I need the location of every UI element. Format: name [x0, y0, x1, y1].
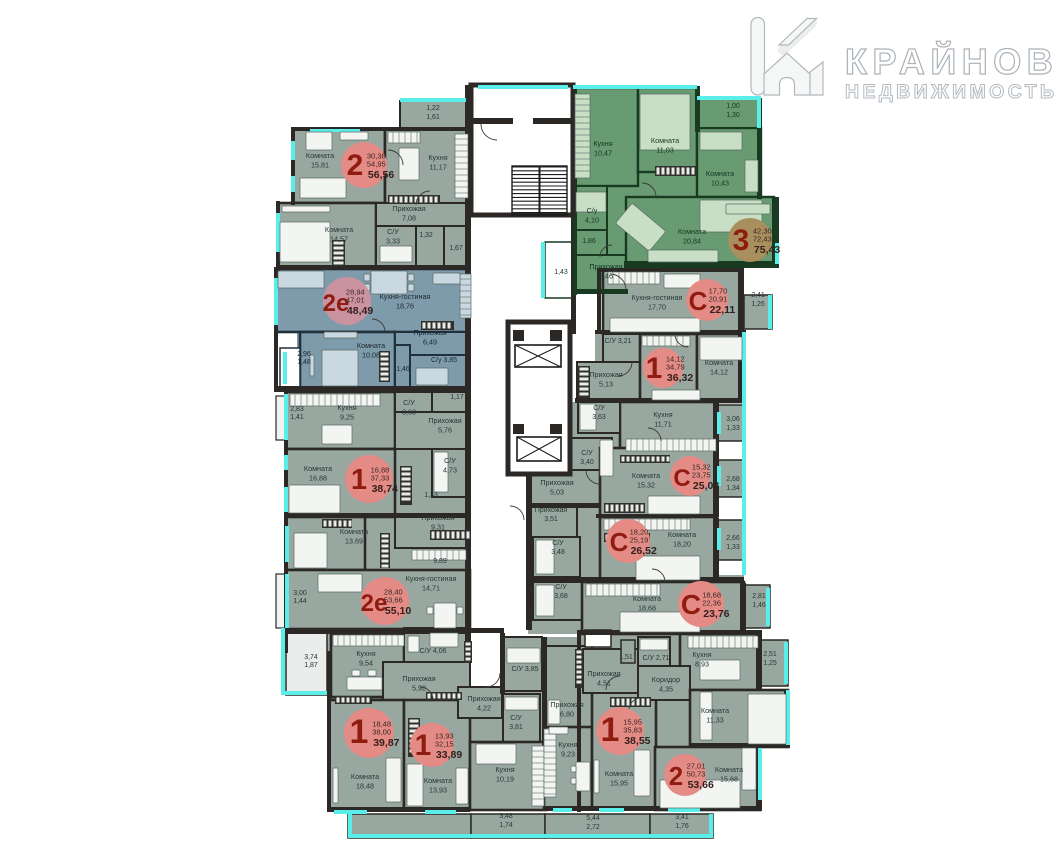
svg-text:13,93: 13,93 — [429, 786, 447, 795]
svg-text:НЕДВИЖИМОСТЬ: НЕДВИЖИМОСТЬ — [845, 81, 1057, 103]
svg-text:54,95: 54,95 — [367, 160, 386, 169]
svg-text:С: С — [681, 589, 701, 620]
svg-text:С/У: С/У — [444, 456, 456, 465]
svg-text:20,91: 20,91 — [709, 295, 728, 304]
svg-text:Кухня: Кухня — [495, 765, 514, 774]
svg-text:1: 1 — [350, 713, 369, 751]
svg-text:5,44: 5,44 — [586, 815, 600, 822]
svg-text:С: С — [689, 286, 708, 316]
svg-text:14,57: 14,57 — [330, 235, 348, 244]
svg-text:18,68: 18,68 — [638, 604, 656, 613]
svg-text:Прихожая: Прихожая — [402, 674, 435, 683]
svg-text:3,81: 3,81 — [509, 724, 523, 731]
svg-text:48,49: 48,49 — [347, 305, 373, 317]
svg-text:23,75: 23,75 — [692, 471, 711, 480]
svg-text:10,43: 10,43 — [711, 179, 729, 188]
svg-text:Кухня-гостиная: Кухня-гостиная — [406, 574, 457, 583]
svg-text:18,76: 18,76 — [396, 302, 414, 311]
svg-text:Кухня: Кухня — [593, 139, 612, 148]
svg-text:50,73: 50,73 — [687, 770, 706, 779]
svg-text:1,26: 1,26 — [751, 301, 765, 308]
svg-text:С/У: С/У — [387, 227, 399, 236]
svg-text:72,43: 72,43 — [753, 235, 772, 244]
svg-text:2,41: 2,41 — [751, 292, 765, 299]
svg-text:Кухня-гостиная: Кухня-гостиная — [380, 292, 431, 301]
svg-text:Комната: Комната — [705, 358, 733, 367]
svg-text:Комната: Комната — [340, 527, 368, 536]
svg-text:2,68: 2,68 — [726, 476, 740, 483]
svg-text:75,43: 75,43 — [754, 244, 780, 256]
svg-text:1: 1 — [646, 352, 663, 385]
svg-text:9,31: 9,31 — [431, 523, 445, 532]
svg-text:Кухня: Кухня — [356, 649, 375, 658]
svg-text:1,74: 1,74 — [499, 822, 513, 829]
svg-text:Комната: Комната — [633, 594, 661, 603]
svg-text:1,44: 1,44 — [293, 598, 307, 605]
svg-text:56,56: 56,56 — [368, 169, 394, 181]
svg-text:Комната: Комната — [706, 169, 734, 178]
svg-text:Коридор: Коридор — [652, 675, 680, 684]
svg-text:1,86: 1,86 — [582, 238, 596, 245]
svg-text:2: 2 — [669, 761, 683, 791]
svg-text:55,10: 55,10 — [385, 605, 411, 617]
svg-text:9,54: 9,54 — [359, 659, 373, 668]
svg-text:7,08: 7,08 — [402, 214, 416, 223]
svg-text:15,95: 15,95 — [610, 779, 628, 788]
svg-text:Комната: Комната — [351, 772, 379, 781]
svg-text:1,33: 1,33 — [424, 492, 438, 499]
svg-text:Прихожая: Прихожая — [550, 700, 583, 709]
svg-text:2,83: 2,83 — [290, 406, 304, 413]
svg-text:13,69: 13,69 — [345, 537, 363, 546]
svg-text:1,46: 1,46 — [752, 602, 766, 609]
svg-text:15,68: 15,68 — [720, 775, 738, 784]
svg-text:Кухня: Кухня — [337, 403, 356, 412]
svg-text:17,70: 17,70 — [648, 303, 666, 312]
svg-text:3,63: 3,63 — [592, 414, 606, 421]
svg-text:С/У 3,21: С/У 3,21 — [604, 338, 631, 345]
svg-text:4,73: 4,73 — [443, 466, 457, 475]
svg-text:3,68: 3,68 — [554, 593, 568, 600]
svg-text:11,03: 11,03 — [656, 146, 673, 155]
svg-text:2,96: 2,96 — [297, 351, 311, 358]
svg-text:Комната: Комната — [424, 776, 452, 785]
svg-text:1,32: 1,32 — [419, 232, 433, 239]
svg-text:3,41: 3,41 — [675, 814, 689, 821]
svg-text:1,51: 1,51 — [619, 654, 633, 661]
svg-text:С: С — [673, 465, 690, 492]
svg-text:1,87: 1,87 — [304, 662, 318, 669]
svg-text:39,87: 39,87 — [373, 737, 399, 749]
svg-text:Прихожая: Прихожая — [421, 513, 454, 522]
svg-text:2,72: 2,72 — [586, 824, 600, 831]
svg-text:Прихожая: Прихожая — [428, 416, 461, 425]
svg-text:18,48: 18,48 — [356, 782, 374, 791]
svg-text:14,71: 14,71 — [422, 584, 440, 593]
svg-text:1,00: 1,00 — [726, 103, 740, 110]
svg-text:38,55: 38,55 — [624, 735, 650, 747]
svg-text:С/У 3,85: С/У 3,85 — [511, 666, 538, 673]
svg-text:47,01: 47,01 — [346, 296, 365, 305]
svg-text:26,52: 26,52 — [631, 545, 657, 557]
svg-text:Комната: Комната — [632, 471, 660, 480]
svg-text:1,76: 1,76 — [675, 823, 689, 830]
svg-text:Прихожая: Прихожая — [392, 204, 425, 213]
svg-text:1,48: 1,48 — [297, 359, 311, 366]
svg-text:2,51: 2,51 — [763, 651, 777, 658]
svg-text:3,06: 3,06 — [726, 416, 740, 423]
svg-text:1,25: 1,25 — [763, 660, 777, 667]
svg-text:10,47: 10,47 — [594, 149, 612, 158]
svg-text:Комната: Комната — [357, 341, 385, 350]
svg-text:3: 3 — [733, 224, 750, 257]
svg-text:36,32: 36,32 — [667, 372, 693, 384]
svg-text:2,81: 2,81 — [752, 593, 766, 600]
svg-text:2: 2 — [347, 149, 364, 182]
svg-text:Комната: Комната — [668, 530, 696, 539]
svg-text:23,76: 23,76 — [703, 608, 729, 620]
svg-text:10,08: 10,08 — [362, 351, 380, 360]
svg-text:8,93: 8,93 — [695, 660, 709, 669]
svg-text:1,33: 1,33 — [726, 425, 740, 432]
svg-text:3,74: 3,74 — [304, 654, 318, 661]
svg-text:Кухня: Кухня — [428, 153, 447, 162]
svg-text:15,32: 15,32 — [637, 481, 655, 490]
svg-text:4,22: 4,22 — [477, 704, 491, 713]
svg-text:5,76: 5,76 — [438, 426, 452, 435]
svg-text:Кухня: Кухня — [653, 410, 672, 419]
svg-text:32,15: 32,15 — [435, 740, 454, 749]
svg-text:53,66: 53,66 — [384, 596, 403, 605]
svg-text:53,66: 53,66 — [688, 779, 714, 791]
svg-text:22,36: 22,36 — [702, 599, 721, 608]
svg-text:3,63: 3,63 — [402, 408, 416, 417]
svg-text:1,22: 1,22 — [426, 105, 440, 112]
svg-text:КРАЙНОВ: КРАЙНОВ — [845, 40, 1058, 82]
svg-text:1,17: 1,17 — [450, 394, 464, 401]
svg-text:С/У: С/У — [552, 540, 564, 547]
svg-text:Комната: Комната — [715, 765, 743, 774]
svg-text:18,20: 18,20 — [673, 540, 691, 549]
svg-text:25,19: 25,19 — [630, 536, 649, 545]
svg-text:5,03: 5,03 — [550, 488, 564, 497]
svg-text:9,23: 9,23 — [561, 750, 575, 759]
svg-text:38,74: 38,74 — [372, 483, 398, 495]
svg-text:9,89: 9,89 — [433, 558, 447, 565]
svg-text:Прихожая: Прихожая — [540, 478, 573, 487]
svg-text:1,41: 1,41 — [290, 414, 304, 421]
svg-text:С/У: С/У — [581, 450, 593, 457]
svg-text:Комната: Комната — [304, 464, 332, 473]
svg-text:3,33: 3,33 — [386, 237, 400, 246]
svg-text:С/У 2,71: С/У 2,71 — [642, 655, 669, 662]
svg-text:Комната: Комната — [678, 227, 706, 236]
svg-text:22,11: 22,11 — [710, 304, 736, 316]
svg-text:4,35: 4,35 — [659, 685, 673, 694]
svg-text:С/У: С/У — [593, 405, 605, 412]
svg-text:Комната: Комната — [605, 769, 633, 778]
svg-text:20,84: 20,84 — [683, 237, 701, 246]
svg-text:С/У: С/У — [510, 715, 522, 722]
svg-text:15,81: 15,81 — [311, 161, 329, 170]
svg-text:1: 1 — [415, 729, 432, 762]
svg-text:1,61: 1,61 — [426, 114, 440, 121]
svg-text:3,51: 3,51 — [544, 516, 558, 523]
svg-text:25,08: 25,08 — [693, 480, 719, 492]
svg-text:35,83: 35,83 — [623, 726, 642, 735]
svg-text:38,00: 38,00 — [372, 728, 391, 737]
svg-text:1,67: 1,67 — [449, 245, 463, 252]
svg-text:С/у 3,85: С/у 3,85 — [431, 357, 457, 364]
svg-text:Комната: Комната — [306, 151, 334, 160]
svg-text:4,51: 4,51 — [597, 679, 611, 688]
svg-text:11,71: 11,71 — [654, 420, 671, 429]
svg-text:3,48: 3,48 — [499, 813, 513, 820]
svg-text:6,46: 6,46 — [599, 272, 613, 281]
svg-text:1,46: 1,46 — [396, 366, 410, 373]
svg-text:1: 1 — [601, 711, 620, 749]
svg-text:Кухня-гостиная: Кухня-гостиная — [632, 293, 683, 302]
svg-text:33,89: 33,89 — [436, 749, 462, 761]
svg-text:С/У 4,06: С/У 4,06 — [419, 648, 446, 655]
svg-text:34,79: 34,79 — [666, 363, 685, 372]
svg-text:Прихожая: Прихожая — [589, 262, 622, 271]
svg-text:3,40: 3,40 — [580, 459, 594, 466]
svg-text:11,17: 11,17 — [429, 163, 446, 172]
svg-text:1,43: 1,43 — [554, 269, 568, 276]
svg-text:5,13: 5,13 — [599, 380, 613, 389]
svg-text:С: С — [610, 527, 629, 557]
svg-text:1: 1 — [351, 464, 367, 496]
svg-text:1,34: 1,34 — [726, 485, 740, 492]
svg-text:2,66: 2,66 — [726, 535, 740, 542]
svg-text:3,00: 3,00 — [293, 590, 307, 597]
svg-text:Прихожая: Прихожая — [535, 507, 568, 514]
svg-text:6,80: 6,80 — [560, 710, 574, 719]
svg-text:10,19: 10,19 — [496, 775, 514, 784]
svg-text:1,30: 1,30 — [726, 112, 740, 119]
svg-text:6,49: 6,49 — [423, 338, 437, 347]
svg-text:11,33: 11,33 — [706, 716, 723, 725]
svg-text:Комната: Комната — [701, 706, 729, 715]
svg-text:С/у: С/у — [587, 206, 598, 215]
svg-text:Кухня: Кухня — [558, 740, 577, 749]
svg-text:С/У: С/У — [403, 398, 415, 407]
svg-text:4,10: 4,10 — [585, 216, 599, 225]
svg-text:14,12: 14,12 — [710, 368, 728, 377]
svg-text:Прихожая: Прихожая — [589, 370, 622, 379]
svg-text:37,33: 37,33 — [371, 474, 390, 483]
svg-text:1,33: 1,33 — [726, 544, 740, 551]
svg-text:9,25: 9,25 — [340, 413, 354, 422]
svg-text:Прихожая: Прихожая — [467, 694, 500, 703]
svg-text:Комната: Комната — [651, 136, 679, 145]
svg-text:Комната: Комната — [325, 225, 353, 234]
svg-text:16,88: 16,88 — [309, 474, 327, 483]
svg-text:Прихожая: Прихожая — [413, 328, 446, 337]
svg-text:3,48: 3,48 — [551, 549, 565, 556]
svg-text:С/У: С/У — [555, 584, 567, 591]
svg-text:Кухня: Кухня — [692, 650, 711, 659]
